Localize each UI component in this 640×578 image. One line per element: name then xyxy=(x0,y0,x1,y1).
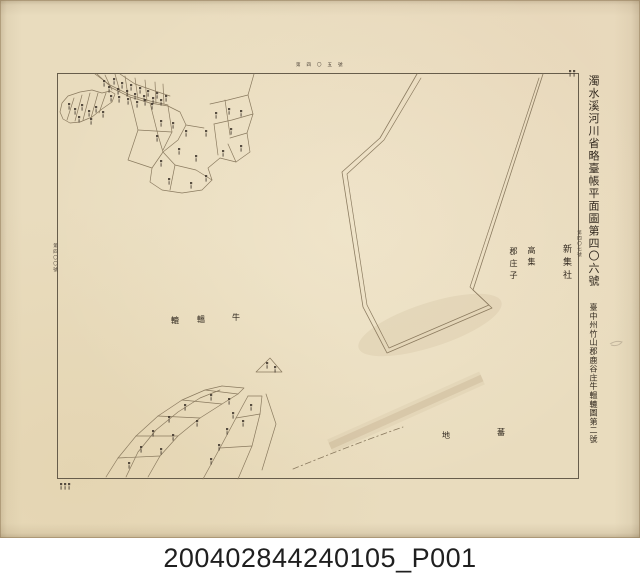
place-label-gunshoshi: 郡庄子 xyxy=(509,247,517,283)
paper-stains xyxy=(330,281,622,446)
map-title-main: 濁水溪河川省略臺帳平面圖第四〇六號 xyxy=(587,75,598,288)
archive-id-text: 200402844240105_P001 xyxy=(163,543,476,574)
map-title-sub: 臺中州竹山郡鹿谷庄牛轀轆圖第二號 xyxy=(589,303,597,444)
map-linework xyxy=(0,0,640,538)
parcel-cluster-bottomleft xyxy=(106,358,282,479)
archive-caption-band: 200402844240105_P001 xyxy=(0,538,640,578)
place-label-banchi-char1: 蕃 xyxy=(497,429,505,437)
adjacent-sheet-note-top: 第四〇五號 xyxy=(296,63,349,68)
parcel-cluster-topleft xyxy=(60,74,254,193)
scanned-map-page: 濁水溪河川省略臺帳平面圖第四〇六號 臺中州竹山郡鹿谷庄牛轀轆圖第二號 第四〇七號… xyxy=(0,0,640,578)
adjacent-sheet-note-right: 第四〇七號 xyxy=(577,230,582,258)
paper-sheet: 濁水溪河川省略臺帳平面圖第四〇六號 臺中州竹山郡鹿谷庄牛轀轆圖第二號 第四〇七號… xyxy=(0,0,640,538)
place-label-gyuonroku-char3: 轆 xyxy=(171,317,179,325)
place-label-banchi-char2: 地 xyxy=(442,432,450,440)
adjacent-sheet-note-left: 第四〇〇號 xyxy=(53,243,58,273)
place-label-gyuonroku-char1: 牛 xyxy=(232,314,240,322)
place-label-gyuonroku-char2: 轀 xyxy=(197,316,205,324)
place-label-koshu: 高集 xyxy=(527,246,535,269)
place-label-shinshusha: 新集社 xyxy=(562,244,571,283)
